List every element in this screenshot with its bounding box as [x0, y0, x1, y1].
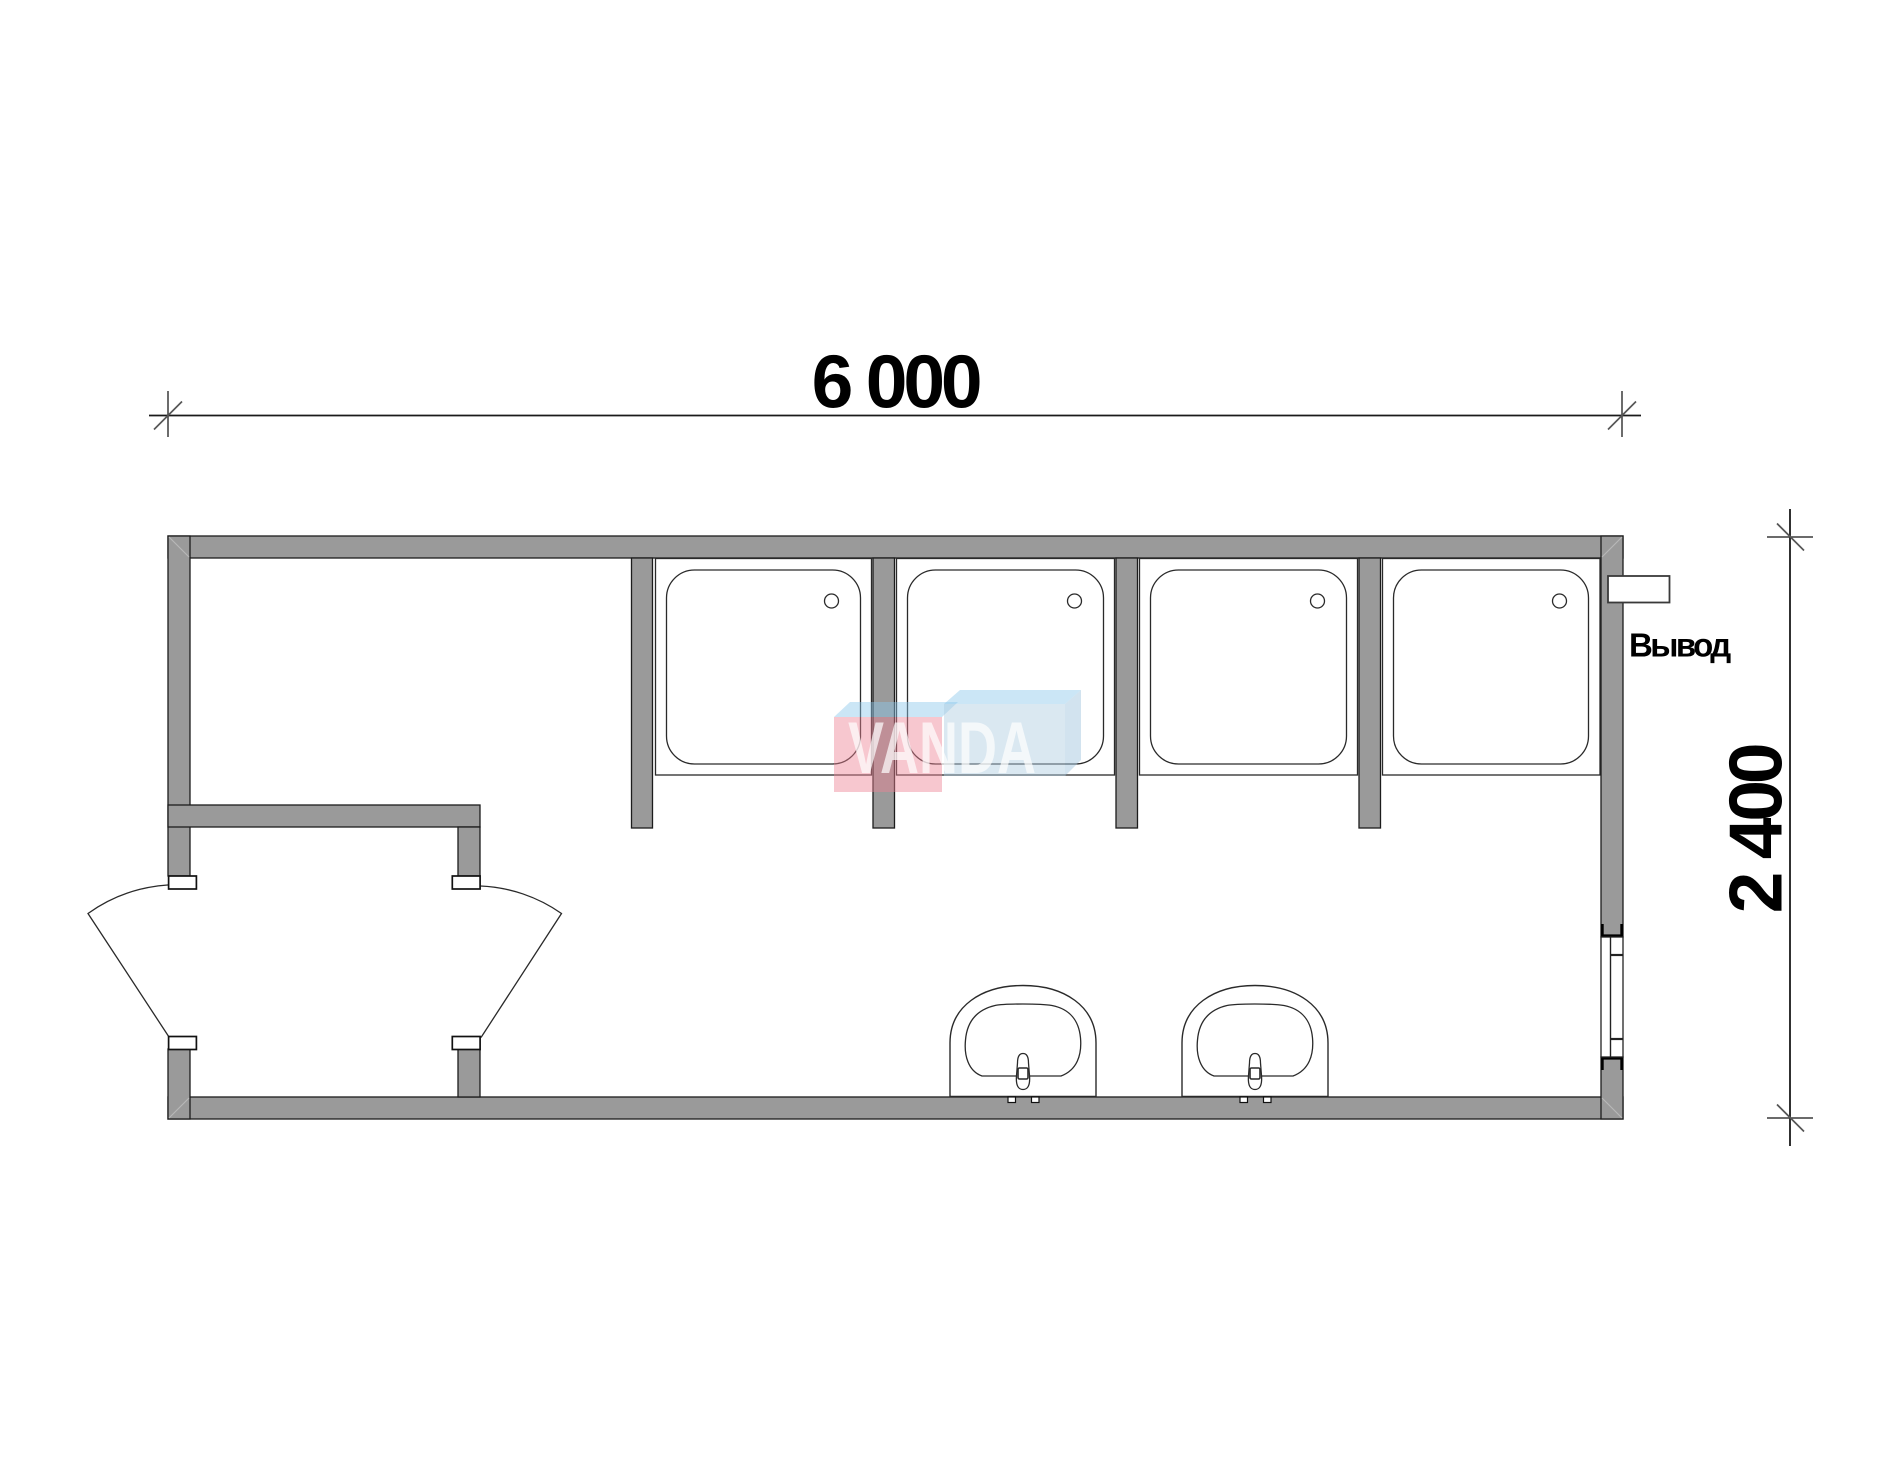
svg-text:2 400: 2 400	[1714, 745, 1798, 913]
svg-text:Вывод: Вывод	[1629, 627, 1731, 664]
svg-text:6 000: 6 000	[812, 340, 980, 424]
svg-text:VANDA: VANDA	[848, 707, 1036, 789]
